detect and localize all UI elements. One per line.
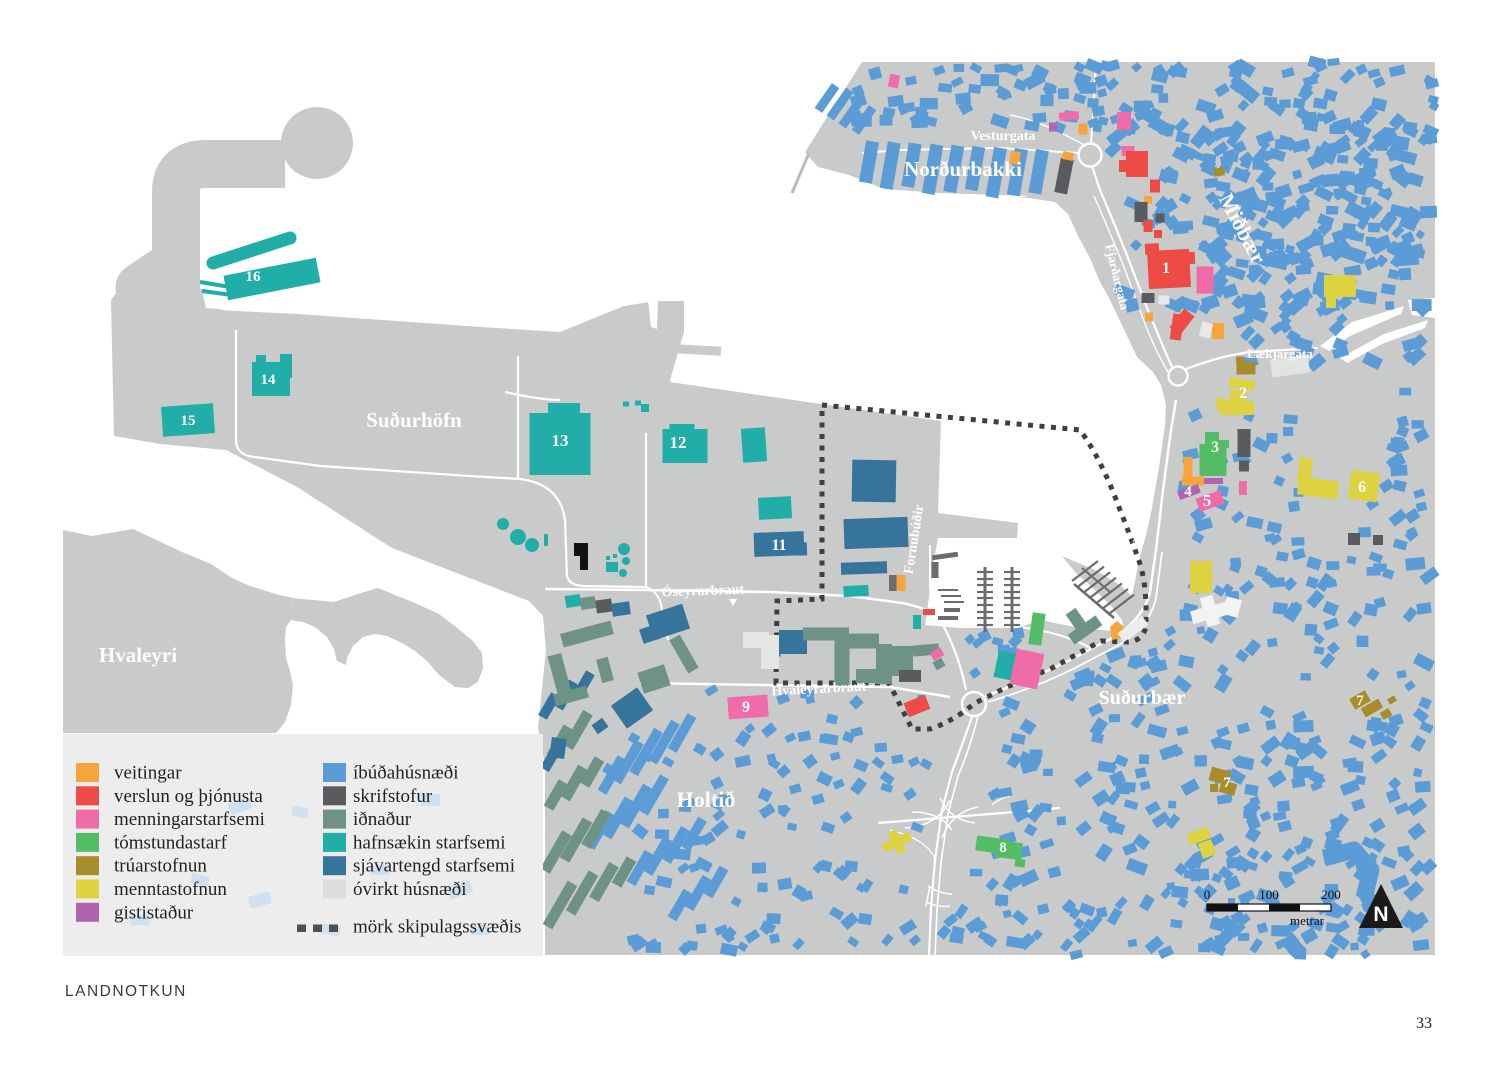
- svg-text:trúarstofnun: trúarstofnun: [114, 856, 207, 877]
- svg-text:7: 7: [1223, 775, 1231, 791]
- svg-text:0: 0: [1204, 887, 1211, 902]
- svg-text:2: 2: [1239, 385, 1247, 402]
- svg-text:metrar: metrar: [1290, 913, 1325, 928]
- svg-text:menningarstarfsemi: menningarstarfsemi: [114, 809, 265, 830]
- svg-text:íbúðahúsnæði: íbúðahúsnæði: [353, 763, 459, 784]
- svg-text:Lækjargata: Lækjargata: [1247, 346, 1313, 361]
- svg-text:Vesturgata: Vesturgata: [971, 129, 1036, 144]
- svg-text:9: 9: [742, 699, 750, 716]
- svg-text:5: 5: [1203, 491, 1212, 510]
- svg-text:skrifstofur: skrifstofur: [353, 786, 433, 807]
- svg-text:12: 12: [670, 433, 687, 452]
- svg-text:Suðurhöfn: Suðurhöfn: [366, 408, 462, 432]
- svg-text:óvirkt húsnæði: óvirkt húsnæði: [353, 879, 466, 900]
- svg-text:8: 8: [999, 840, 1007, 856]
- svg-text:6: 6: [1358, 479, 1366, 496]
- svg-text:menntastofnun: menntastofnun: [114, 879, 227, 900]
- svg-text:200: 200: [1321, 887, 1341, 902]
- svg-text:11: 11: [771, 537, 786, 554]
- svg-text:Suðurbær: Suðurbær: [1099, 687, 1186, 709]
- svg-text:LANDNOTKUN: LANDNOTKUN: [65, 983, 187, 1000]
- svg-text:verslun og þjónusta: verslun og þjónusta: [114, 786, 263, 807]
- svg-text:hafnsækin starfsemi: hafnsækin starfsemi: [353, 832, 506, 853]
- svg-text:14: 14: [261, 372, 277, 388]
- svg-text:tómstundastarf: tómstundastarf: [114, 832, 228, 853]
- svg-text:N: N: [1373, 903, 1388, 926]
- svg-text:veitingar: veitingar: [114, 763, 182, 784]
- svg-text:16: 16: [246, 269, 262, 285]
- svg-text:15: 15: [181, 413, 196, 429]
- svg-text:4: 4: [1184, 484, 1192, 500]
- svg-text:Holtið: Holtið: [677, 787, 736, 812]
- svg-text:7: 7: [1356, 693, 1364, 709]
- svg-text:iðnaður: iðnaður: [353, 809, 412, 830]
- svg-text:13: 13: [552, 431, 569, 450]
- svg-text:1: 1: [1162, 260, 1170, 277]
- svg-text:Hvaleyri: Hvaleyri: [99, 643, 177, 667]
- svg-text:33: 33: [1416, 1015, 1432, 1032]
- svg-text:gististaður: gististaður: [114, 902, 194, 923]
- svg-text:100: 100: [1259, 887, 1279, 902]
- svg-text:Norðurbakki: Norðurbakki: [904, 157, 1022, 181]
- svg-text:sjávartengd starfsemi: sjávartengd starfsemi: [353, 856, 515, 877]
- svg-text:mörk skipulagssvæðis: mörk skipulagssvæðis: [353, 917, 521, 938]
- svg-text:3: 3: [1211, 439, 1219, 456]
